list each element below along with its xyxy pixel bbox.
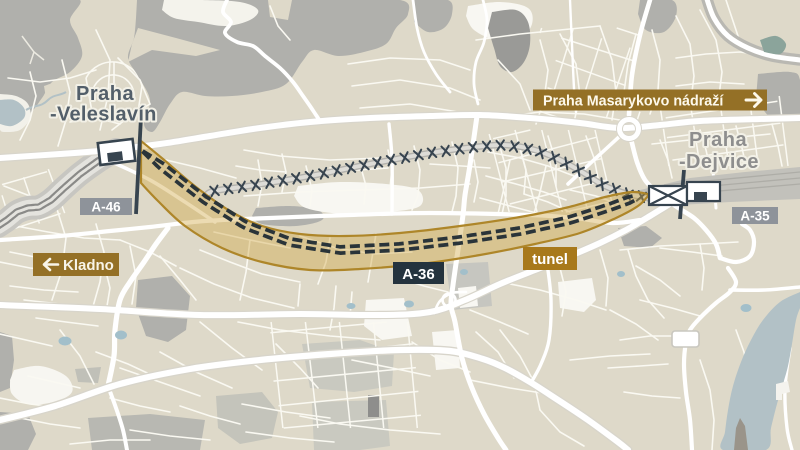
svg-text:A-36: A-36	[402, 266, 435, 283]
svg-text:A-35: A-35	[740, 209, 770, 224]
svg-text:Praha: Praha	[689, 129, 747, 151]
svg-text:Praha: Praha	[76, 83, 134, 105]
svg-text:-Dejvice: -Dejvice	[679, 151, 759, 173]
svg-text:A-46: A-46	[91, 200, 121, 215]
svg-text:tunel: tunel	[532, 251, 568, 268]
svg-text:Kladno: Kladno	[63, 257, 114, 274]
svg-text:Praha Masarykovo nádraží: Praha Masarykovo nádraží	[543, 94, 724, 110]
svg-text:-Veleslavín: -Veleslavín	[50, 104, 157, 126]
